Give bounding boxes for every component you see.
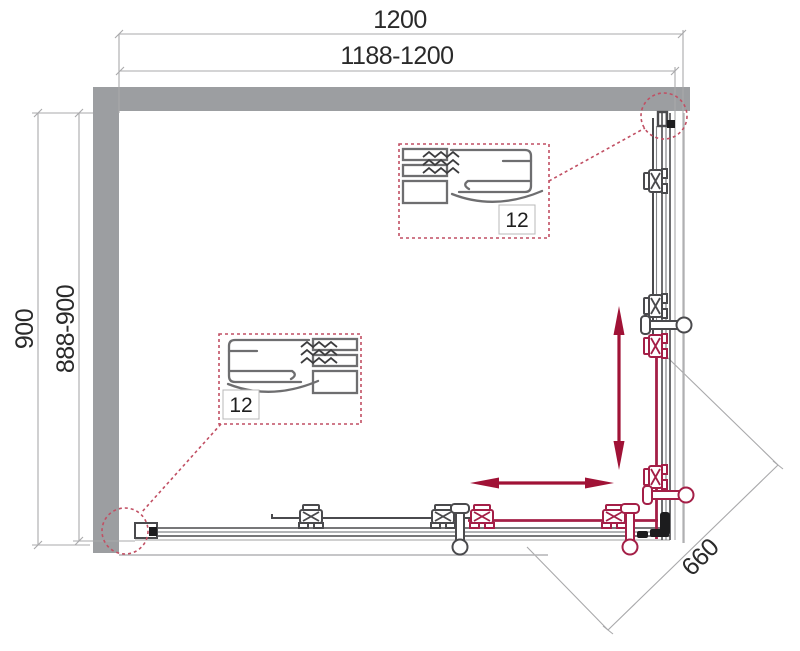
door-handle-icon: [621, 504, 639, 555]
left-wall: [93, 87, 119, 553]
bottom-rail-wall-endcap: [135, 523, 157, 538]
dimension-top-outer: 1200: [115, 6, 686, 543]
bottom-rail: [135, 528, 670, 540]
right-red-door: [643, 334, 694, 539]
roller-icon: [644, 294, 667, 318]
bottom-gray-door: [272, 504, 470, 555]
roller-icon: [299, 505, 323, 528]
dim-label-top-outer: 1200: [373, 6, 427, 34]
callout-leader-top: [549, 128, 645, 181]
slide-arrows: [470, 306, 625, 489]
bottom-red-door: [468, 504, 658, 555]
right-side: [637, 112, 694, 543]
detail-label-top: 12: [505, 209, 528, 232]
dim-label-left-outer: 900: [11, 309, 39, 349]
detail-label-left: 12: [229, 394, 252, 417]
detail-box-top: 12: [399, 144, 549, 238]
dim-label-left-inner: 888-900: [52, 285, 80, 373]
roller-icon: [644, 169, 667, 193]
top-wall: [93, 87, 690, 111]
roller-icon: [644, 334, 667, 358]
callout-leader-left: [141, 424, 221, 513]
floor-plan-diagram: 1200 1188-1200 900 888-900 660: [0, 0, 800, 651]
horizontal-slide-arrow-icon: [470, 478, 614, 489]
door-handle-icon: [451, 504, 469, 555]
dimension-top-inner: 1188-1200: [116, 42, 679, 540]
profile-section-drawing: [403, 149, 542, 203]
right-rail-wall-endcap: [658, 112, 675, 128]
vertical-slide-arrow-icon: [614, 306, 625, 470]
bottom-side: [135, 504, 670, 555]
roller-icon: [470, 505, 494, 528]
dim-label-top-inner: 1188-1200: [340, 42, 453, 70]
plan-drawing: 1200 1188-1200 900 888-900 660: [0, 0, 800, 651]
profile-section-drawing: [228, 339, 357, 393]
door-handle-icon: [643, 486, 694, 504]
detail-box-left: 12: [219, 334, 361, 424]
corner-bracket: [637, 512, 670, 538]
